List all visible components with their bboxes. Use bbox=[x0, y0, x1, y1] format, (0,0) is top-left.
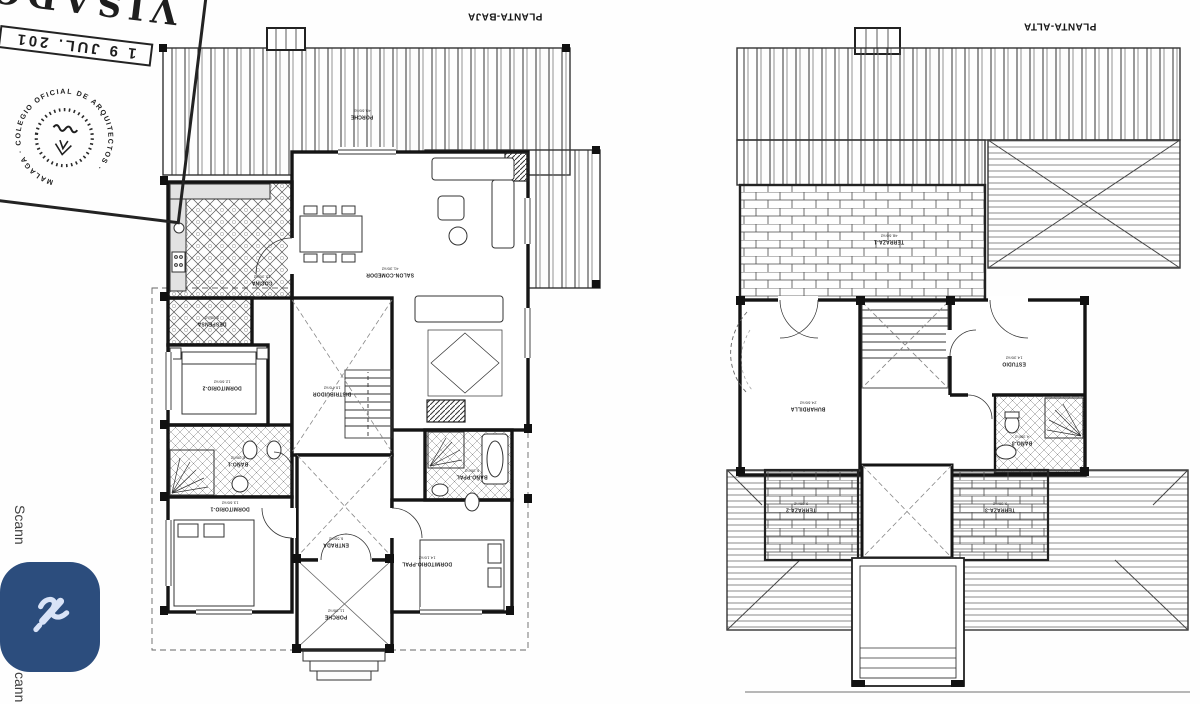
signature-pen-icon bbox=[25, 592, 75, 642]
room-label: BAÑO-34.30m2 bbox=[1012, 434, 1032, 445]
svg-text:MALAGA · COLEGIO OFICIAL DE AR: MALAGA · COLEGIO OFICIAL DE ARQUITECTOS … bbox=[7, 81, 121, 194]
room-label: COCINA15.30m2 bbox=[252, 274, 273, 285]
room-label: DORMITORIO-212.60m2 bbox=[202, 379, 241, 390]
planta-alta-drawing bbox=[720, 20, 1195, 695]
room-label: DORMITORIO-PPAL14.10m2 bbox=[402, 555, 452, 566]
planta-baja-title: PLANTA-BAJA bbox=[468, 11, 543, 22]
stamp-date: 1 9 JUL. 201 bbox=[0, 25, 154, 67]
room-label: TERRAZA-148.60m2 bbox=[874, 233, 904, 244]
room-label: BUHARDILLA24.60m2 bbox=[791, 400, 826, 411]
room-label: BAÑO-PPAL6.30m2 bbox=[456, 468, 487, 479]
alta-hiproof-top bbox=[988, 140, 1180, 268]
visado-stamp: MALAGA · COLEGIO OFICIAL DE ARQUITECTOS … bbox=[0, 0, 209, 224]
room-label: DISTRIBUIDOR10.70m2 bbox=[313, 385, 352, 396]
room-label: BAÑO-16.30m2 bbox=[228, 455, 248, 466]
room-label: PORCHE11.30m2 bbox=[325, 608, 348, 619]
room-label: PORCHE45.60m2 bbox=[351, 108, 374, 119]
room-label: DORMITORIO-113.60m2 bbox=[210, 500, 249, 511]
alta-hiproof-bottom bbox=[727, 465, 1188, 687]
stamp-visado-text: VISADO bbox=[0, 0, 180, 31]
room-label: DESPENSA3.30m2 bbox=[197, 315, 226, 326]
scanner-signature-button[interactable] bbox=[0, 562, 100, 672]
scanner-watermark-bottom: cann bbox=[12, 672, 28, 704]
planta-alta-title: PLANTA-ALTA bbox=[1024, 21, 1097, 32]
room-label: ENTRADA6.50m2 bbox=[323, 536, 349, 547]
scanner-watermark-top: Scann bbox=[12, 505, 28, 563]
college-seal: MALAGA · COLEGIO OFICIAL DE ARQUITECTOS … bbox=[0, 63, 152, 212]
room-label: TERRAZA-29.30m2 bbox=[786, 501, 816, 512]
room-label: SALON-COMEDOR41.30m2 bbox=[366, 266, 414, 277]
room-label: ESTUDIO14.30m2 bbox=[1002, 355, 1026, 366]
laurel-wreath-emblem bbox=[50, 125, 77, 156]
planta-baja-drawing bbox=[145, 5, 615, 690]
room-label: TERRAZA-39.30m2 bbox=[985, 501, 1015, 512]
